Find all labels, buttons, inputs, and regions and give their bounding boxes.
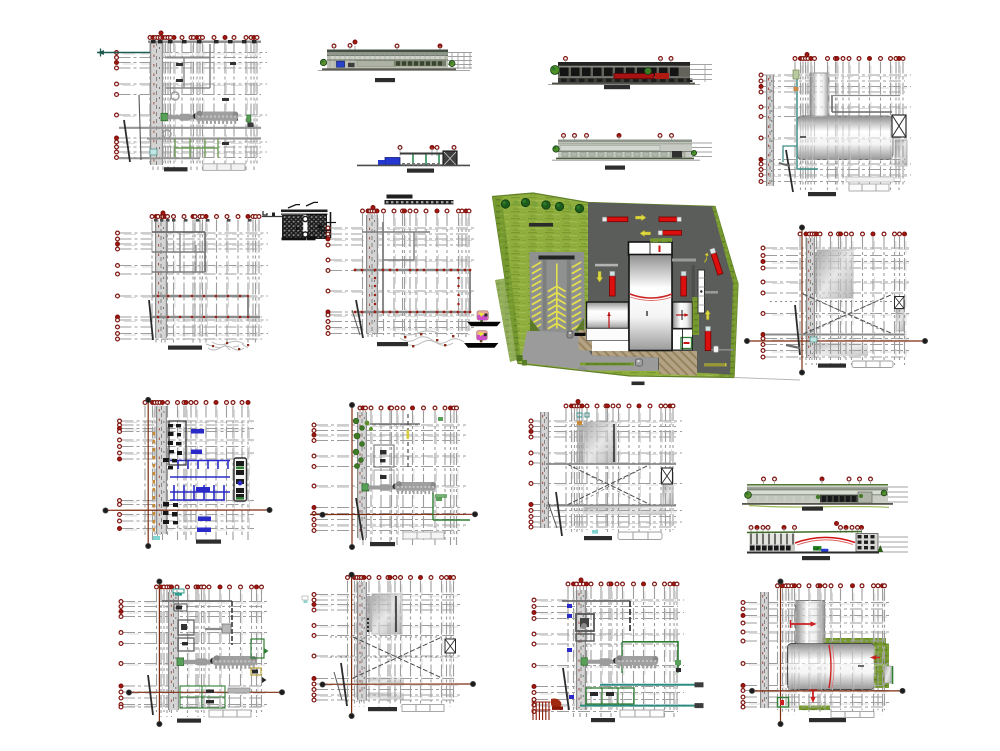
svg-text:HP: HP <box>814 547 820 551</box>
